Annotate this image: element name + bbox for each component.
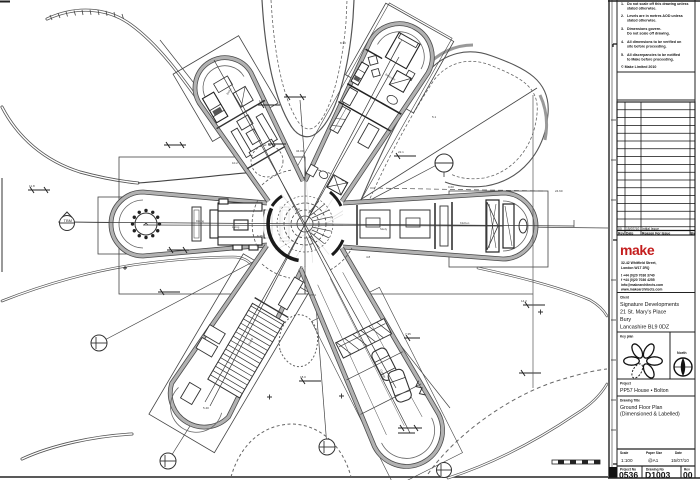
svg-text:Living: Living <box>232 225 240 229</box>
svg-text:Initial Issue: Initial Issue <box>642 227 659 231</box>
svg-text:24.60: 24.60 <box>555 189 563 193</box>
svg-text:14.2: 14.2 <box>521 299 527 303</box>
svg-text:Scale: Scale <box>620 451 629 455</box>
svg-text:22.1: 22.1 <box>398 150 404 154</box>
svg-text:London W1T 2RQ: London W1T 2RQ <box>621 266 650 270</box>
svg-text:stated otherwise.: stated otherwise. <box>627 19 656 23</box>
svg-text:4.8: 4.8 <box>366 255 371 259</box>
svg-text:By: By <box>691 232 695 236</box>
svg-text:5.1: 5.1 <box>432 115 437 119</box>
svg-text:9.60: 9.60 <box>448 185 454 189</box>
svg-text:Do not scale off this drawing: Do not scale off this drawing unless <box>627 2 689 6</box>
svg-text:32-42 Whitfield Street,: 32-42 Whitfield Street, <box>621 261 656 265</box>
svg-text:34.00: 34.00 <box>296 149 304 153</box>
svg-text:6.25: 6.25 <box>257 234 263 238</box>
svg-text:North: North <box>677 351 687 355</box>
svg-text:TBM: TBM <box>64 218 72 223</box>
svg-text:@A1: @A1 <box>648 458 659 463</box>
svg-text:12.5: 12.5 <box>259 99 265 103</box>
svg-text:Date: Date <box>675 451 682 455</box>
svg-text:Hall: Hall <box>295 207 300 211</box>
svg-text:2.: 2. <box>621 14 624 18</box>
svg-text:1:100: 1:100 <box>621 458 633 463</box>
svg-text:27.4: 27.4 <box>310 293 316 297</box>
svg-text:10.2: 10.2 <box>232 161 238 165</box>
svg-text:Rev: Rev <box>618 232 624 236</box>
svg-text:Paper Size: Paper Size <box>646 451 662 455</box>
svg-text:© Make Limited 2010: © Make Limited 2010 <box>621 65 656 69</box>
svg-text:to Make before proceeding.: to Make before proceeding. <box>627 58 674 62</box>
svg-text:Bury: Bury <box>620 317 631 323</box>
svg-text:4.: 4. <box>621 40 624 44</box>
svg-text:Project: Project <box>620 382 632 386</box>
svg-text:Client: Client <box>620 296 630 300</box>
svg-text:5.: 5. <box>621 53 624 57</box>
svg-text:7.35: 7.35 <box>405 332 411 336</box>
svg-text:18.0: 18.0 <box>300 375 306 379</box>
svg-text:8.30: 8.30 <box>340 41 346 45</box>
svg-text:Drawing Title: Drawing Title <box>620 399 640 403</box>
svg-text:t +44 (0)20 7036 3740: t +44 (0)20 7036 3740 <box>621 274 655 278</box>
svg-text:Lancashire BL9 0DZ: Lancashire BL9 0DZ <box>620 325 670 331</box>
svg-text:Do not scale off drawing.: Do not scale off drawing. <box>627 32 670 36</box>
svg-text:Dimensions govern.: Dimensions govern. <box>627 27 661 31</box>
svg-text:stated otherwise.: stated otherwise. <box>627 7 656 11</box>
svg-text:info@makearchitects.com: info@makearchitects.com <box>621 283 663 287</box>
svg-text:PP57 House • Bolton: PP57 House • Bolton <box>620 388 669 394</box>
svg-text:3.: 3. <box>621 27 624 31</box>
svg-text:5.40: 5.40 <box>203 406 209 410</box>
svg-text:11.8: 11.8 <box>29 184 35 188</box>
svg-text:Reason For Issue: Reason For Issue <box>642 232 670 236</box>
svg-text:Kitchen: Kitchen <box>460 221 470 225</box>
svg-text:Ground Floor Plan: Ground Floor Plan <box>620 405 663 411</box>
svg-text:Key plan: Key plan <box>620 335 633 339</box>
svg-text:Study: Study <box>380 227 388 231</box>
svg-text:f +44 (0)20 7036 4255: f +44 (0)20 7036 4255 <box>621 278 655 282</box>
svg-text:21 St. Mary's Place: 21 St. Mary's Place <box>620 310 666 316</box>
svg-text:00: 00 <box>618 227 622 231</box>
svg-text:15/07/10: 15/07/10 <box>671 458 689 463</box>
svg-text:Signature Developments: Signature Developments <box>620 302 679 308</box>
svg-text:make: make <box>620 242 655 258</box>
svg-text:1.: 1. <box>621 2 624 6</box>
svg-text:15/07/10: 15/07/10 <box>626 227 639 231</box>
svg-text:site before proceeding.: site before proceeding. <box>627 45 667 49</box>
svg-text:Dining: Dining <box>196 219 204 223</box>
svg-text:All discrepancies to be notifi: All discrepancies to be notified <box>627 53 680 57</box>
svg-text:Date: Date <box>626 232 633 236</box>
svg-text:All dimensions to be verified: All dimensions to be verified on <box>627 40 681 44</box>
svg-text:www.makearchitects.com: www.makearchitects.com <box>620 287 662 291</box>
svg-text:(Dimensioned & Labelled): (Dimensioned & Labelled) <box>620 412 680 418</box>
svg-text:Levels are in metres AOD unles: Levels are in metres AOD unless <box>627 14 683 18</box>
